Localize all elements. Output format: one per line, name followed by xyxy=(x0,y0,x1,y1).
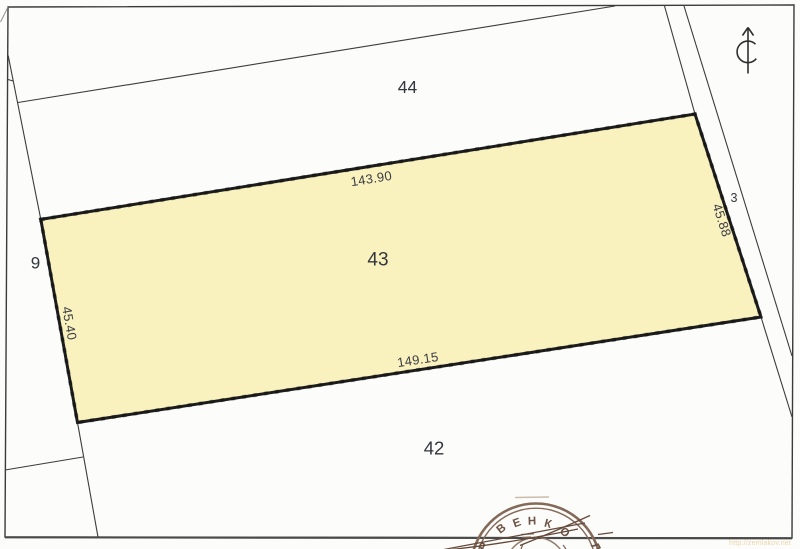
svg-text:42: 42 xyxy=(424,438,445,459)
svg-text:43: 43 xyxy=(367,250,388,271)
svg-text:Н: Н xyxy=(528,515,537,527)
svg-text:http://zemlakov.net: http://zemlakov.net xyxy=(729,540,791,547)
svg-text:44: 44 xyxy=(398,77,418,97)
svg-text:3: 3 xyxy=(731,191,738,205)
svg-text:9: 9 xyxy=(31,254,40,273)
